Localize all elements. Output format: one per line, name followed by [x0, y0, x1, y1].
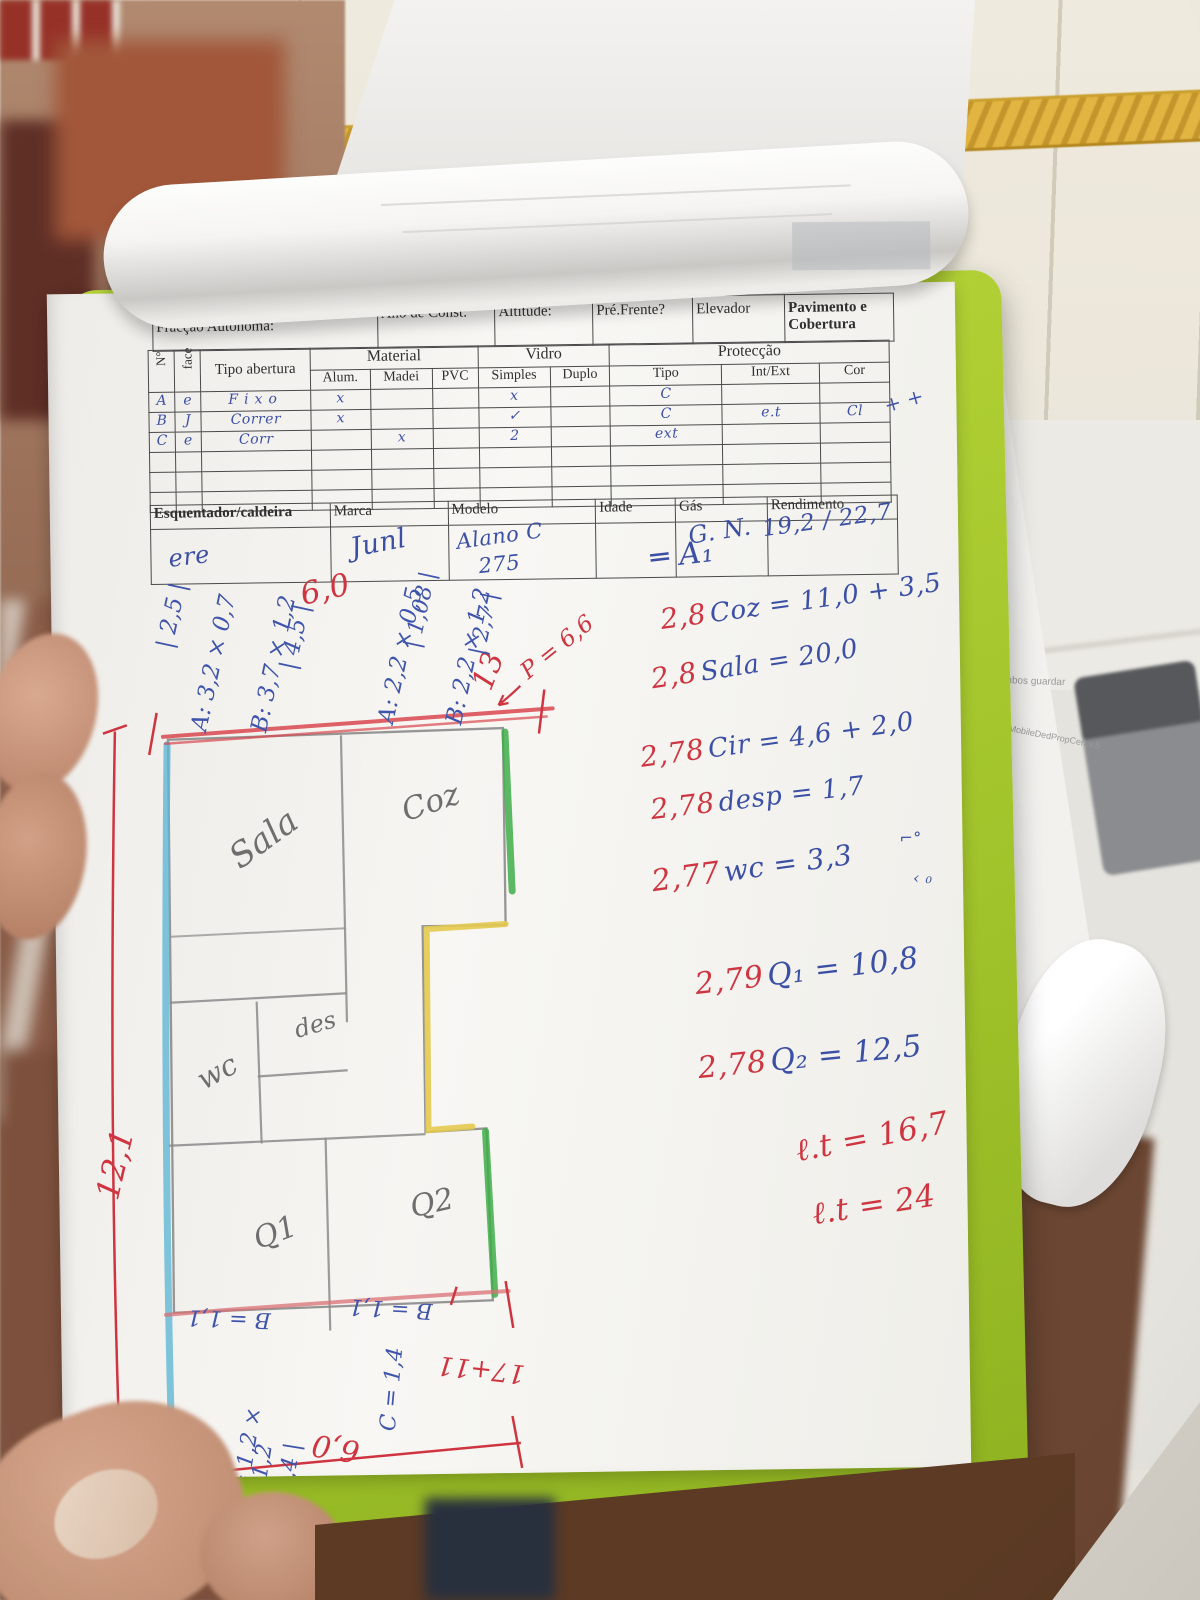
dim-c: C = 1,4	[376, 1346, 409, 1432]
measure-1-total: | 2,5 |	[152, 580, 192, 651]
dim-bottom-sum: 17+11	[436, 1349, 527, 1388]
dim-a-bottom2: 1,2	[248, 1442, 278, 1479]
perimeter-label: P = 6,6	[515, 610, 599, 685]
dim-left-label: 12,1	[88, 1125, 141, 1203]
survey-sheet: Brecah O Longo Fracção Autónoma: Ano de …	[47, 282, 971, 1480]
dim-bottom-label: 6,0	[309, 1427, 362, 1469]
dim-b1: B = 1,1	[187, 1304, 272, 1332]
ghost-sticker	[792, 221, 930, 270]
perimeter-arrow	[498, 686, 520, 705]
photo-scene: 3 3o ambos guardar MobileDedPropCert.v.5…	[0, 0, 1200, 1600]
ghost-table-line	[403, 213, 833, 233]
dim-line-left	[97, 725, 137, 1459]
measure-1: A: 3,2 × 0,7	[186, 592, 241, 735]
dim-b2: B = 1,1	[348, 1293, 434, 1323]
ghost-table-line	[381, 184, 851, 206]
floorplan-sketch: 6,0 13 P = 6,6 12,1 17+11 6,0 | 2,5 | A:…	[47, 282, 971, 1480]
dark-shadow	[425, 1498, 555, 1600]
calc-header: ═ A₁	[649, 534, 716, 576]
plan-outline	[166, 728, 511, 1313]
crayon-green-right-upper	[505, 732, 512, 891]
calc-wc-mark: ⌐°	[899, 828, 922, 847]
calc-wc-mark: ‹ ₀	[913, 868, 933, 887]
margin-plus-marks: + +	[881, 384, 926, 418]
crayon-yellow-step	[426, 924, 509, 1130]
